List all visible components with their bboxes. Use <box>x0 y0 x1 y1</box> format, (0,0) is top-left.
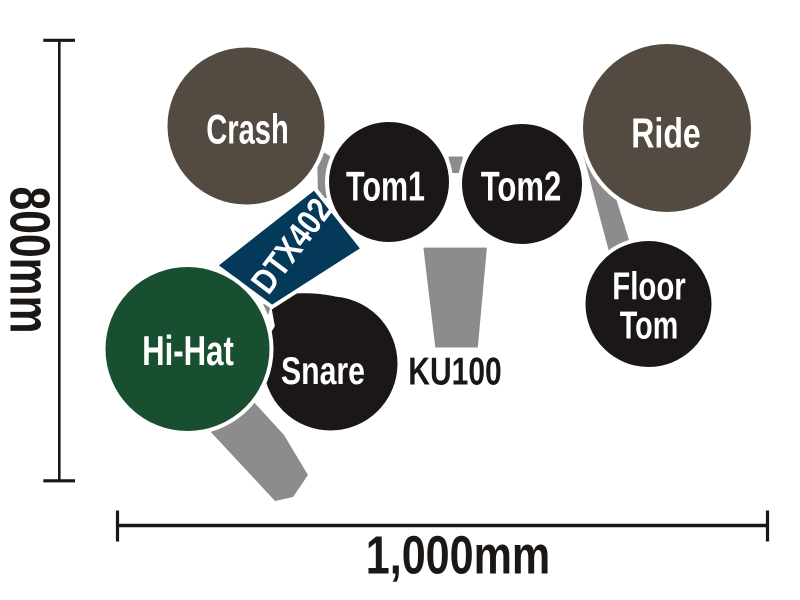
svg-text:Hi-Hat: Hi-Hat <box>142 327 234 374</box>
svg-text:Crash: Crash <box>206 106 289 153</box>
svg-text:1,000mm: 1,000mm <box>366 526 551 586</box>
svg-text:Ride: Ride <box>631 110 701 157</box>
svg-text:800mm: 800mm <box>0 187 61 334</box>
svg-text:Tom: Tom <box>620 305 679 348</box>
svg-text:KU100: KU100 <box>408 350 502 393</box>
svg-text:Snare: Snare <box>281 350 365 393</box>
svg-text:Floor: Floor <box>612 266 686 309</box>
svg-text:Tom2: Tom2 <box>481 163 562 210</box>
svg-text:Tom1: Tom1 <box>346 162 425 209</box>
